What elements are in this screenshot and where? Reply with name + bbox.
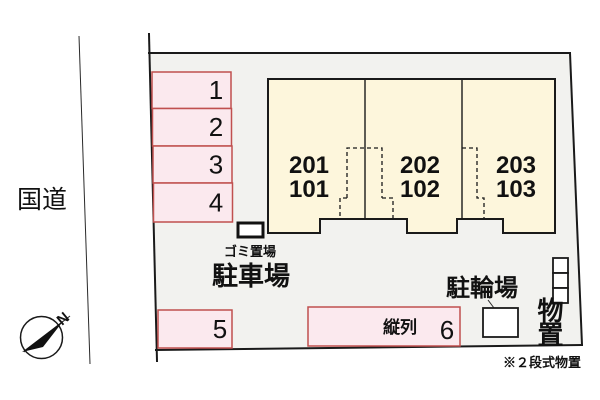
unit-3-upper-label: 203	[496, 152, 536, 179]
storage-label: 物置	[534, 297, 564, 346]
road-label: 国道	[17, 186, 67, 214]
parking-spot-2-label: 2	[209, 112, 223, 142]
road-edge-line	[79, 36, 90, 364]
unit-1-upper-label: 201	[289, 152, 329, 179]
storage-unit-1	[553, 258, 568, 273]
parking-area-label: 駐車場	[212, 261, 290, 291]
storage-footnote: ※２段式物置	[503, 355, 581, 370]
compass: N	[21, 309, 73, 358]
storage-unit-2	[553, 273, 568, 288]
tandem-number-label: 6	[440, 315, 454, 345]
parking-spot-1-label: 1	[209, 75, 223, 105]
tandem-label: 縦列	[383, 317, 417, 337]
bicycle-parking-label: 駐輪場	[446, 274, 518, 302]
site-plan-canvas: 国道 1 2 3 4 5 縦列 6 201 101 202 102 203 10…	[0, 0, 600, 400]
site-plan: 国道 1 2 3 4 5 縦列 6 201 101 202 102 203 10…	[0, 0, 600, 400]
unit-3-lower-label: 103	[496, 176, 536, 203]
bicycle-parking-area	[483, 308, 518, 337]
garbage-area-icon	[238, 223, 263, 237]
unit-2-lower-label: 102	[400, 176, 440, 203]
unit-1-lower-label: 101	[289, 176, 329, 203]
parking-spot-4-label: 4	[209, 188, 223, 218]
parking-spot-5-label: 5	[213, 314, 227, 344]
parking-spot-3-label: 3	[209, 150, 223, 180]
garbage-label: ゴミ置場	[224, 244, 276, 259]
unit-2-upper-label: 202	[400, 152, 440, 179]
